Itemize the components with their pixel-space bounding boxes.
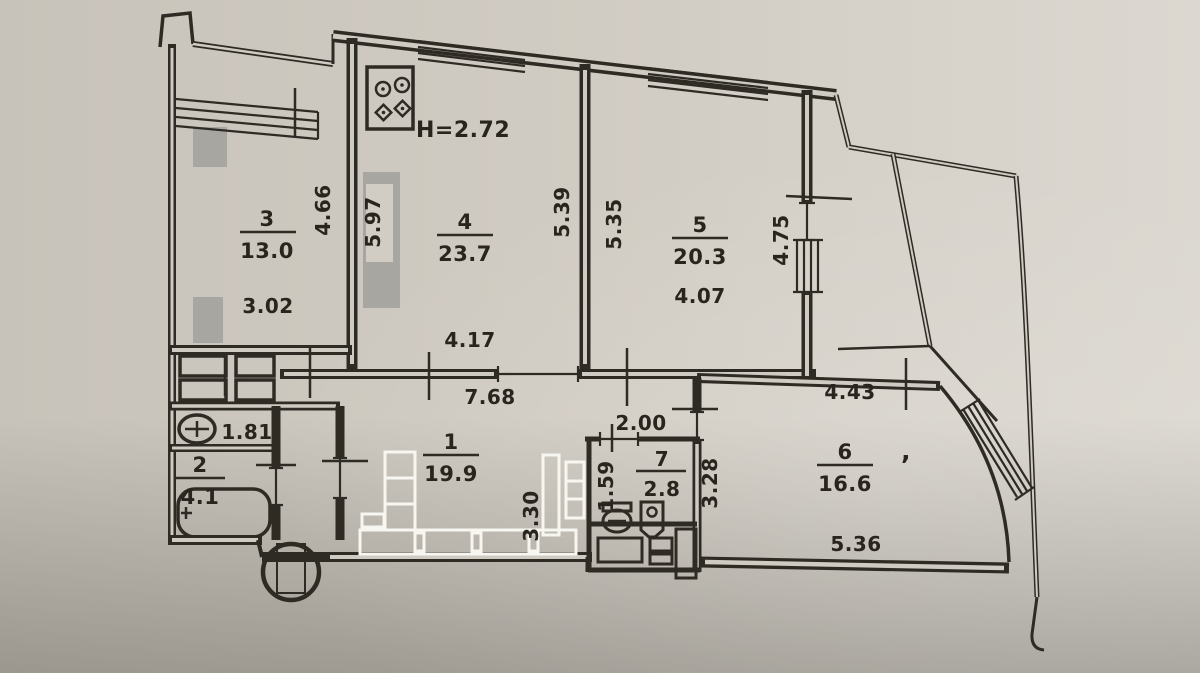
- dim-room5-left: 5.35: [602, 198, 626, 249]
- room-2-area: 4.1: [181, 485, 220, 509]
- floor-plan-photo: 3 13.0 4 23.7 5 20.3 6 16.6 1 19.9 2 4.1: [0, 0, 1200, 673]
- dim-room3-width: 3.02: [242, 294, 293, 318]
- dim-room6-bottom: 5.36: [830, 532, 881, 556]
- dim-room3-height: 4.66: [311, 184, 335, 235]
- ceiling-height-note: H=2.72: [416, 118, 510, 143]
- radiator-bottom: [193, 297, 223, 343]
- dim-hall-depth: 3.30: [519, 490, 543, 541]
- room-7-number: 7: [655, 447, 669, 471]
- dim-room7-height: 1.59: [594, 460, 618, 511]
- room-4-area: 23.7: [438, 242, 492, 266]
- room-5-area: 20.3: [673, 245, 727, 269]
- room-1-area: 19.9: [424, 462, 478, 486]
- room-3-area: 13.0: [240, 239, 294, 263]
- dim-room6-top: 4.43: [824, 380, 875, 404]
- room-3-number: 3: [259, 207, 274, 231]
- stray-mark: ʼ: [901, 451, 911, 481]
- room-4-number: 4: [457, 210, 472, 234]
- room-5-number: 5: [692, 213, 707, 237]
- room-2-number: 2: [192, 453, 207, 477]
- dim-wall-3-4: 5.97: [361, 196, 385, 247]
- dim-hall-width: 7.68: [464, 385, 515, 409]
- dim-wc: 1.81: [221, 420, 272, 444]
- room-7-area: 2.8: [644, 477, 681, 501]
- radiator-top: [193, 127, 227, 167]
- room-1-number: 1: [443, 430, 458, 454]
- dim-room5-width: 4.07: [674, 284, 725, 308]
- dim-room5-right: 4.75: [769, 214, 793, 265]
- floor-plan: 3 13.0 4 23.7 5 20.3 6 16.6 1 19.9 2 4.1: [0, 0, 1200, 673]
- dim-room4-width: 4.17: [444, 328, 495, 352]
- dim-room6-left: 3.28: [698, 457, 722, 508]
- room-6-area: 16.6: [818, 472, 872, 496]
- room-6-number: 6: [837, 440, 852, 464]
- dim-room7-width: 2.00: [615, 411, 666, 435]
- dim-room4-height: 5.39: [550, 186, 574, 237]
